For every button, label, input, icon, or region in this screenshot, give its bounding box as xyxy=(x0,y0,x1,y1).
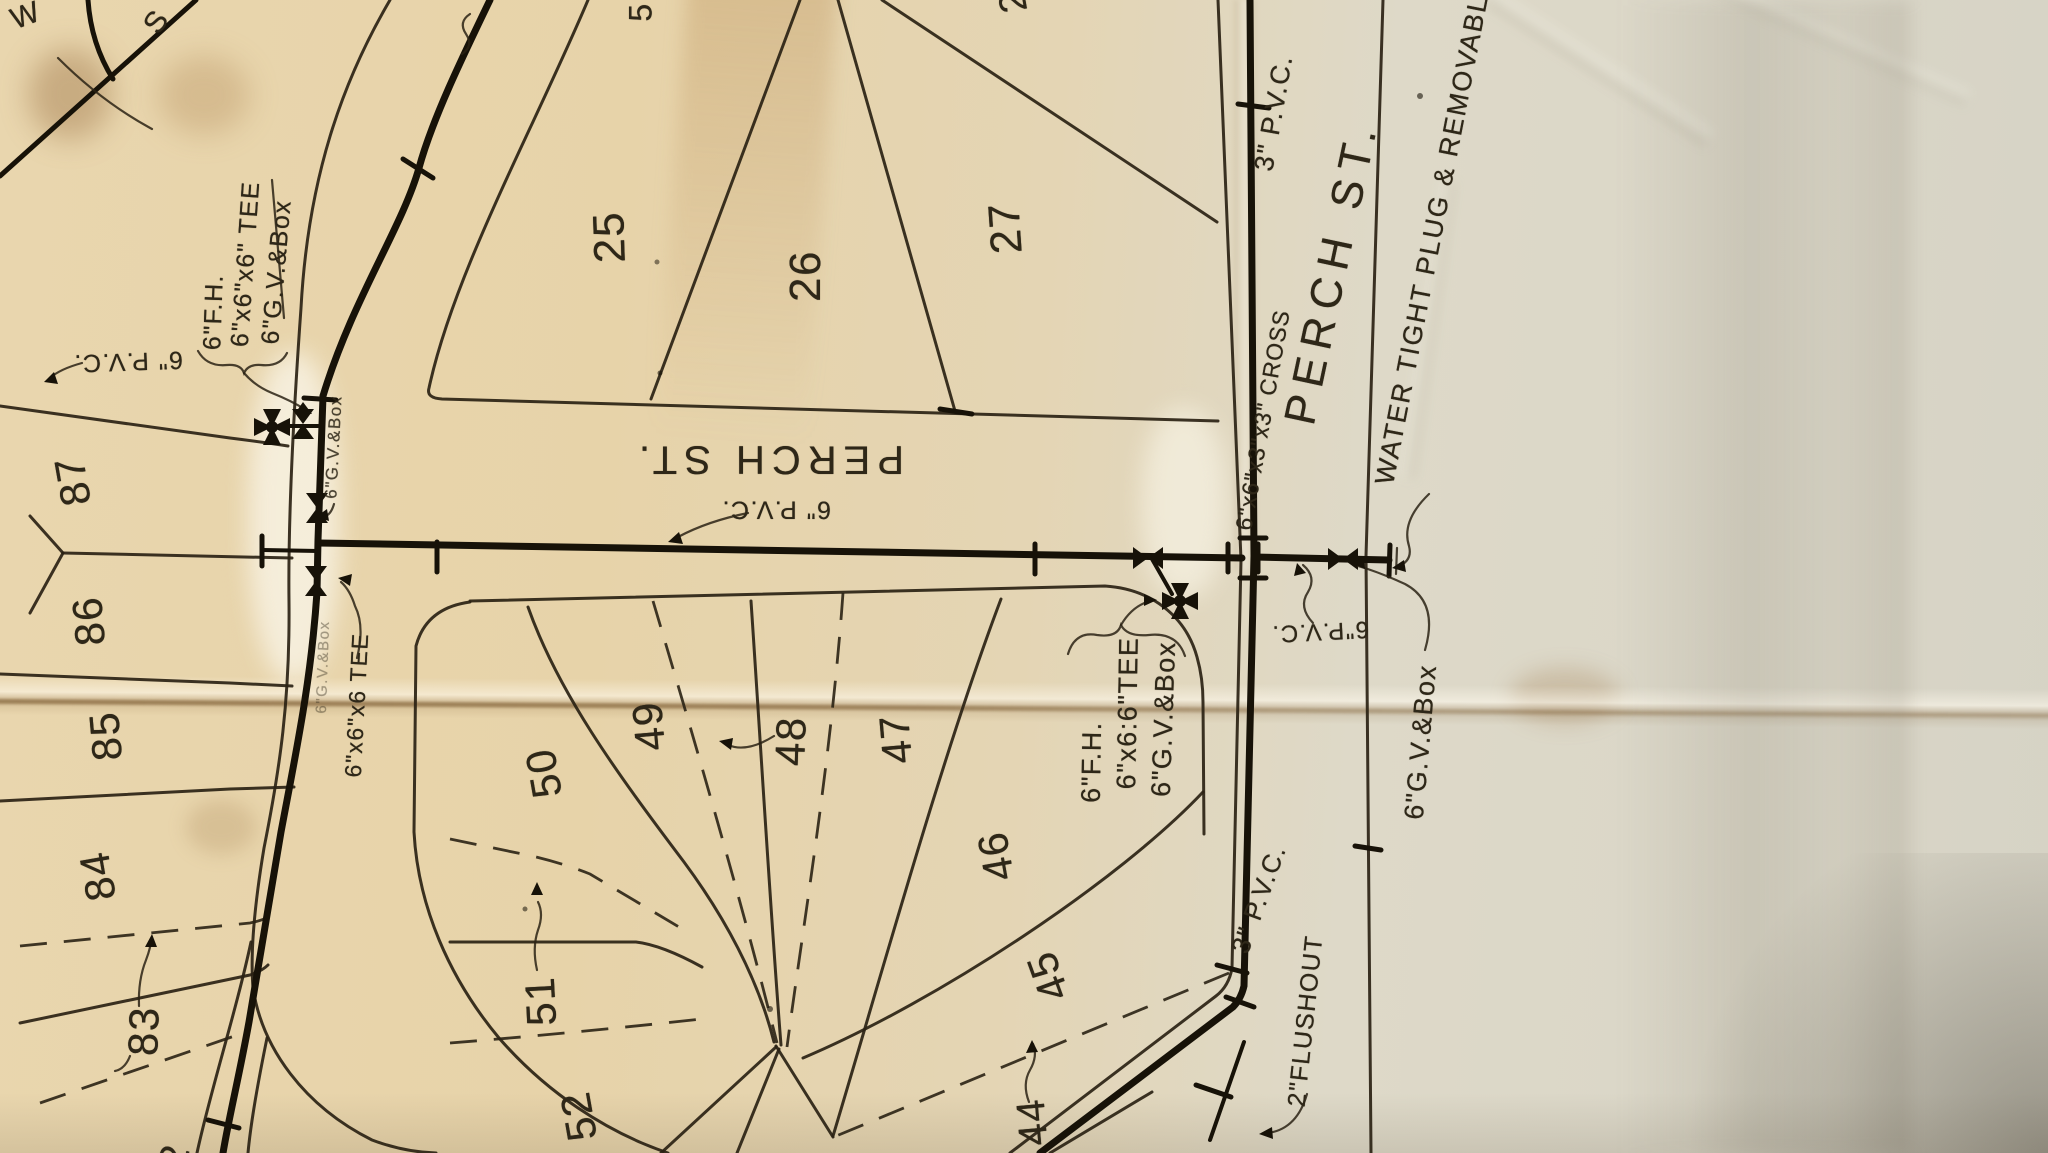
lot-number: 27 xyxy=(979,200,1033,255)
annotation-gate-valve: 6"G.V.&Box xyxy=(1146,641,1182,798)
annotation-pvc-main: 6" P.V.C. xyxy=(721,495,831,524)
annotation-gate-valve: 6"G.V.&Box xyxy=(313,620,333,714)
lot-number: 85 xyxy=(80,709,132,763)
lot-number: 83 xyxy=(119,1005,169,1056)
lot-number: 48 xyxy=(766,715,816,766)
lot-number: 5 xyxy=(623,2,660,21)
lot-number: 46 xyxy=(968,827,1024,884)
lot-number: 25 xyxy=(584,210,636,264)
annotation-fire-hydrant: 6"F.H. xyxy=(198,273,230,350)
hydrant-symbol xyxy=(254,409,290,445)
plat-map-photo: W S 5 28 25 26 27 87 86 85 84 83 82 50 4… xyxy=(0,0,2048,1153)
annotation-pvc-main: 6"P.V.C. xyxy=(1270,614,1369,647)
lot-number: 52 xyxy=(551,1087,607,1144)
street-label-perch-st-horizontal: PERCH ST. xyxy=(632,437,904,482)
lot-number: 44 xyxy=(1009,1096,1058,1147)
lot-number: 87 xyxy=(45,452,101,509)
lot-number: 49 xyxy=(623,699,675,753)
annotation-pvc-main: 6" P.V.C. xyxy=(73,345,184,378)
annotation-fire-hydrant: 6"F.H. xyxy=(1076,721,1108,803)
lot-number: 26 xyxy=(781,250,831,302)
lot-number: 50 xyxy=(516,744,572,801)
lot-number: 84 xyxy=(70,847,126,904)
lot-number: 86 xyxy=(63,594,115,648)
lot-number: 51 xyxy=(516,975,567,1027)
lot-number: 47 xyxy=(870,712,922,766)
annotation-tee: 6"x6:6"TEE xyxy=(1111,636,1145,789)
